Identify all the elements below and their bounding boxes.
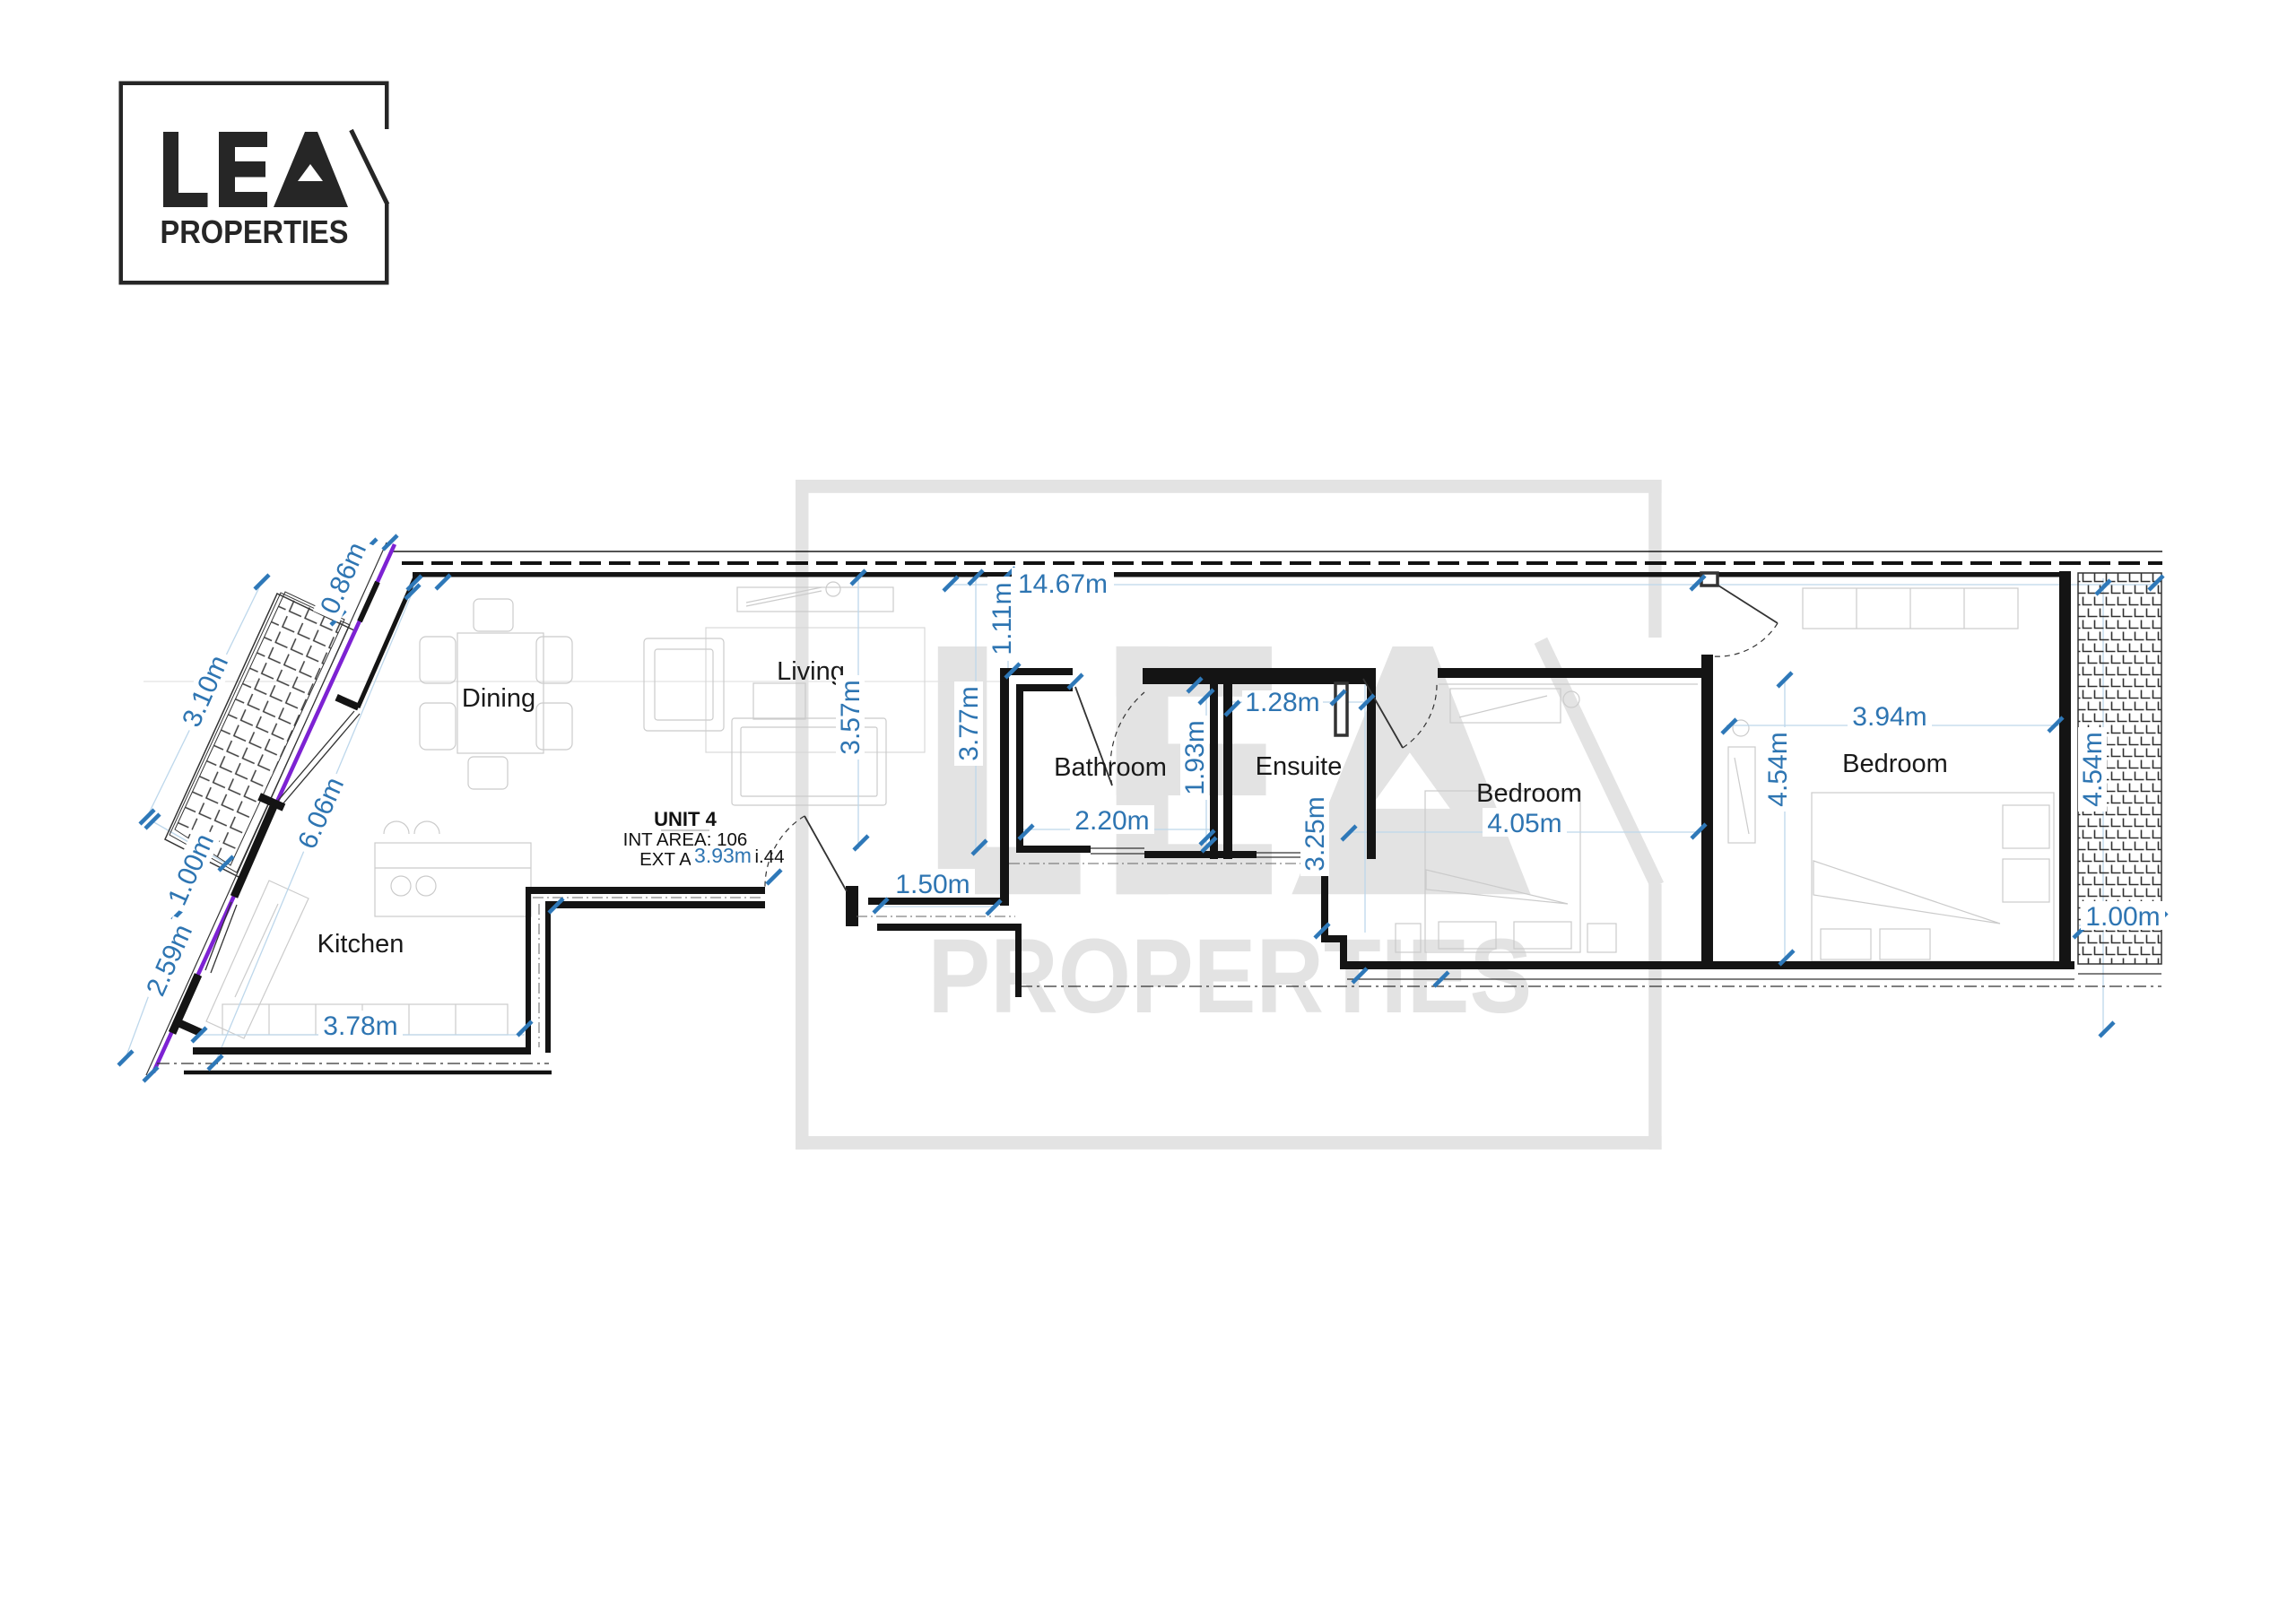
svg-text:3.25m: 3.25m (1300, 796, 1330, 871)
svg-text:Living: Living (777, 657, 845, 686)
svg-text:3.93m: 3.93m (694, 844, 752, 867)
svg-text:4.54m: 4.54m (1763, 732, 1793, 806)
svg-text:1.11m: 1.11m (987, 582, 1017, 655)
svg-text:4.54m: 4.54m (2078, 732, 2108, 806)
svg-text:1.28m: 1.28m (1245, 688, 1319, 717)
svg-text:14.67m: 14.67m (1018, 569, 1108, 599)
svg-text:1.93m: 1.93m (1180, 720, 1210, 794)
svg-text:Bedroom: Bedroom (1476, 779, 1582, 808)
svg-text:i.44: i.44 (754, 846, 784, 867)
svg-text:3.94m: 3.94m (1852, 702, 1926, 732)
svg-text:1.00m: 1.00m (2085, 902, 2160, 932)
svg-text:3.57m: 3.57m (836, 680, 865, 754)
svg-text:3.77m: 3.77m (954, 686, 984, 760)
svg-text:4.05m: 4.05m (1487, 809, 1561, 838)
svg-text:EXT A: EXT A (639, 849, 691, 870)
svg-text:Dining: Dining (462, 684, 535, 713)
svg-text:Ensuite: Ensuite (1256, 752, 1343, 781)
svg-text:Bedroom: Bedroom (1842, 750, 1948, 778)
svg-text:UNIT 4: UNIT 4 (654, 808, 717, 830)
svg-text:Kitchen: Kitchen (317, 930, 404, 959)
svg-text:3.78m: 3.78m (323, 1011, 397, 1041)
svg-text:2.20m: 2.20m (1074, 806, 1149, 836)
svg-text:Bathroom: Bathroom (1054, 753, 1167, 782)
svg-text:1.50m: 1.50m (895, 870, 970, 899)
